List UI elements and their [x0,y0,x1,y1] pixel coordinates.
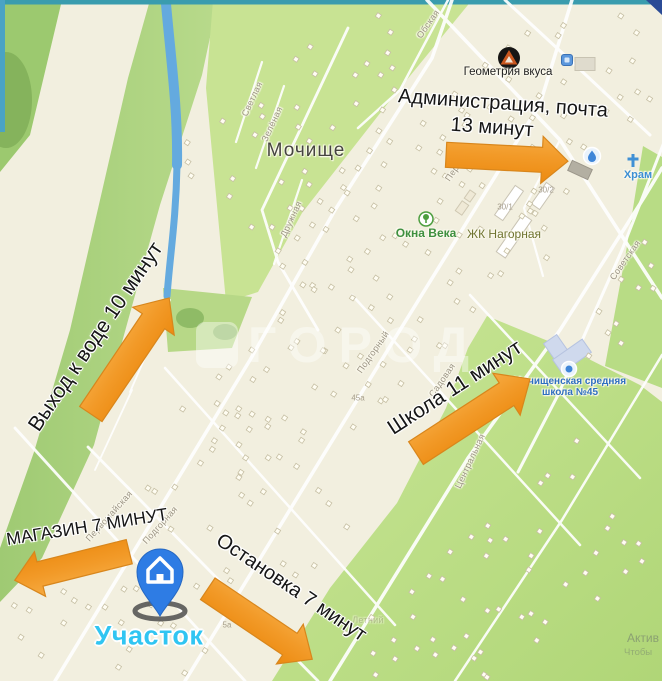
street-label: Пер [443,163,461,183]
house-door-icon [157,574,164,583]
building-number-label: 30/2 [538,186,554,195]
pin-shadow-ring [135,603,185,619]
poi-label-school[interactable]: Мочищенская средняя школа №45 [514,376,626,398]
street-label: Обская [415,8,442,40]
government-building-icon[interactable] [584,148,601,165]
school-pin-icon[interactable] [562,362,577,377]
street-label: Светлая [240,80,265,118]
house-icon [148,558,172,582]
okna-veka-tree-icon[interactable] [419,212,433,226]
annotation-admin-line2: 13 минут [450,114,534,143]
town-label: Мочище [267,140,346,162]
poi-label-school-line1: Мочищенская средняя [514,376,626,387]
street-label: Советская [608,238,643,282]
building-number-label: 30/1 [497,203,513,212]
activation-watermark-line2: Чтобы [624,647,652,658]
poi-label-zhk-nagornaya[interactable]: ЖК Нагорная [467,227,541,241]
street-label: Зелёная [260,105,285,143]
map-watermark: ГОРОД [196,320,481,370]
watermark-logo-icon [196,322,238,368]
annotation-water-label: Выход к воде 10 минут [24,238,168,436]
poi-label-geometry-vkusa[interactable]: Геометрия вкуса [464,66,553,78]
annotation-school-label: Школа 11 минут [383,336,526,441]
church-cross-icon[interactable] [628,154,639,167]
poi-label-okna-veka[interactable]: Окна Века [396,226,457,240]
street-label: Подгорный [355,329,391,375]
street-label: Центральная [453,432,487,490]
poi-label-school-line2: школа №45 [514,387,626,398]
annotation-bus-label: Остановка 7 минут [212,529,371,647]
building-number-label: 5а [223,621,232,630]
plot-label: Участок [95,621,204,652]
pin-body [137,549,183,616]
poi-label-khram[interactable]: Храм [624,169,652,181]
map-canvas: ОбскаяСветлаяЗелёнаяДружнаяПерПодгорныйС… [0,0,662,681]
activation-watermark-line1: Актив [627,631,659,645]
building-number-label: 45а [351,394,364,403]
bus-stop-icon[interactable] [562,55,573,66]
street-label: Дружная [278,199,303,238]
